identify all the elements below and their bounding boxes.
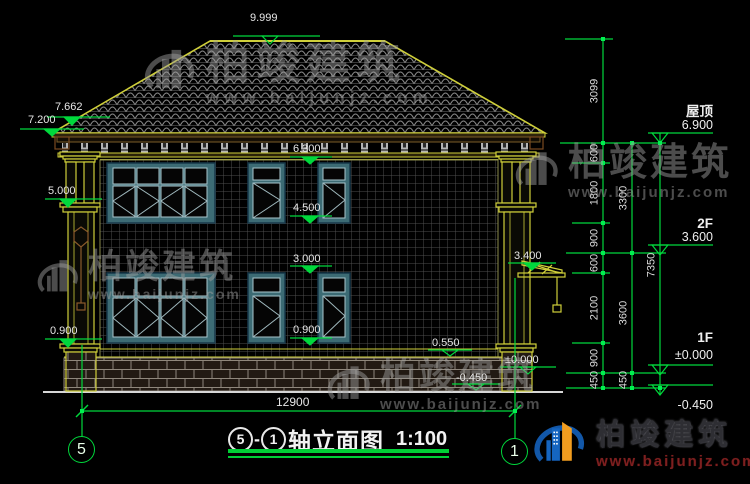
dim-label-900b: 900 [590, 349, 601, 367]
title-separator: - [254, 429, 260, 450]
level-roof-value: 6.900 [649, 119, 713, 132]
brand-logo-text: 柏竣建筑 [596, 421, 750, 450]
dim-label-2100: 2100 [590, 296, 601, 320]
elevation-label-zero: ±0.000 [505, 355, 539, 366]
dim-label-450b: 450 [619, 371, 630, 389]
elevation-label-col-base: 0.900 [50, 326, 78, 337]
dim-label-3600: 3600 [619, 301, 630, 325]
watermark-bottom: 柏竣建筑 www.baijunjz.com [326, 358, 541, 414]
dim-label-600a: 600 [590, 144, 601, 162]
window-2f-middle [248, 163, 285, 223]
dim-label-450a: 450 [590, 371, 601, 389]
elevation-label-win1-sill: 0.900 [293, 325, 321, 336]
elevation-label-plinth: 0.550 [432, 338, 460, 349]
watermark-left: 柏竣建筑 www.baijunjz.com [36, 250, 241, 308]
elevation-label-canopy: 3.400 [514, 251, 542, 262]
window-2f-right [318, 163, 350, 223]
level-f1-name: 1F [649, 331, 713, 345]
window-1f-middle [248, 273, 285, 343]
level-f2-name: 2F [649, 217, 713, 231]
dim-label-7350: 7350 [647, 253, 658, 277]
title-axis-start: 5 [228, 427, 253, 452]
watermark-brand: 柏竣建筑 [206, 42, 433, 86]
dim-label-600b: 600 [590, 254, 601, 272]
title-underline-thin [228, 456, 449, 458]
elevation-label-win1-top: 3.000 [293, 254, 321, 265]
title-underline-thick [228, 449, 449, 453]
watermark-logo-icon [142, 42, 200, 104]
dim-label-3099: 3099 [590, 79, 601, 103]
elevation-label-win2-sill: 4.500 [293, 203, 321, 214]
watermark-url: www.baijunjz.com [88, 287, 241, 301]
cad-elevation-drawing: 柏竣建筑 www.baijunjz.com 柏竣建筑 www.baijunjz.… [0, 0, 750, 484]
elevation-label-roof-upper: 7.662 [55, 102, 83, 113]
elevation-label-minus: -0.450 [456, 373, 487, 384]
brand-logo: 柏竣建筑 www.baijunjz.com [534, 415, 750, 473]
dim-label-3300: 3300 [619, 186, 630, 210]
watermark-url: www.baijunjz.com [380, 397, 541, 412]
watermark-logo-icon [36, 250, 82, 308]
level-f2-value: 3.600 [649, 231, 713, 244]
watermark-top: 柏竣建筑 www.baijunjz.com [142, 42, 433, 106]
dim-label-1800: 1800 [590, 181, 601, 205]
elevation-label-win2-top: 6.300 [293, 144, 321, 155]
level-roof-name: 屋顶 [649, 105, 713, 119]
level-below-value: -0.450 [649, 399, 713, 412]
watermark-url: www.baijunjz.com [206, 89, 433, 106]
watermark-logo-icon [514, 144, 562, 200]
axis-bubble-1: 1 [501, 438, 528, 465]
watermark-logo-icon [326, 358, 374, 414]
brand-logo-url: www.baijunjz.com [596, 454, 750, 469]
title-axis-end: 1 [261, 427, 286, 452]
elevation-label-ridge: 9.999 [250, 13, 278, 24]
axis-bubble-5: 5 [68, 436, 95, 463]
title-scale: 1:100 [396, 428, 447, 451]
watermark-brand: 柏竣建筑 [88, 250, 241, 284]
dim-label-900a: 900 [590, 229, 601, 247]
overall-dimension-label: 12900 [276, 396, 309, 408]
level-f1-value: ±0.000 [649, 349, 713, 362]
window-1f-right [318, 273, 350, 343]
elevation-label-eave: 7.200 [28, 115, 56, 126]
window-2f-left [107, 163, 215, 223]
elevation-label-col-capital: 5.000 [48, 186, 76, 197]
brand-logo-icon [534, 415, 588, 473]
